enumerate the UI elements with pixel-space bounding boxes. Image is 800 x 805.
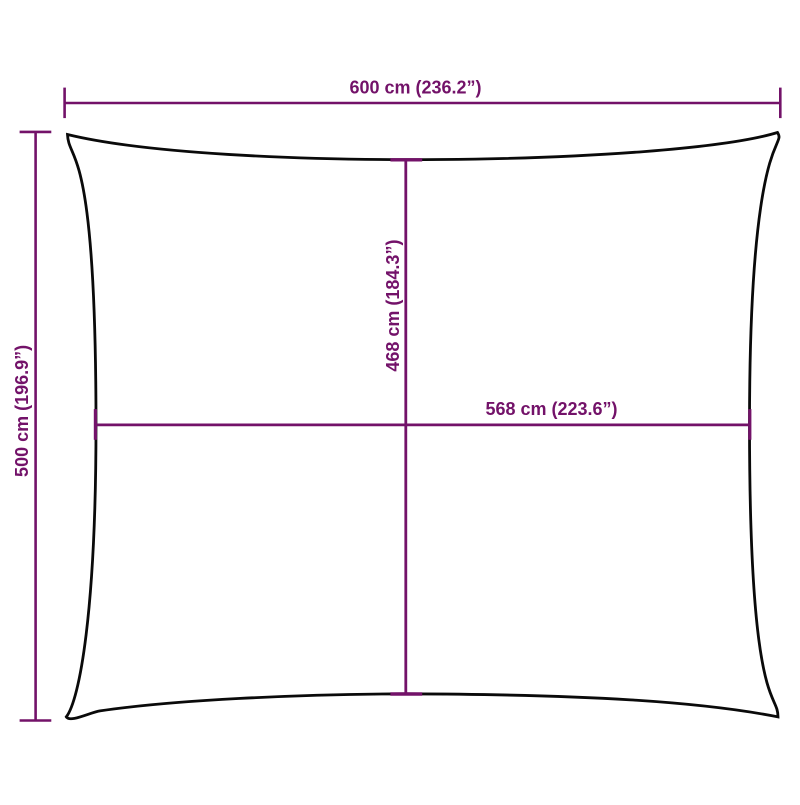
svg-text:568 cm (223.6”): 568 cm (223.6”)	[485, 399, 617, 419]
svg-text:500 cm (196.9”): 500 cm (196.9”)	[12, 345, 32, 477]
svg-text:600 cm (236.2”): 600 cm (236.2”)	[349, 78, 481, 98]
svg-text:468 cm (184.3”): 468 cm (184.3”)	[383, 240, 403, 372]
